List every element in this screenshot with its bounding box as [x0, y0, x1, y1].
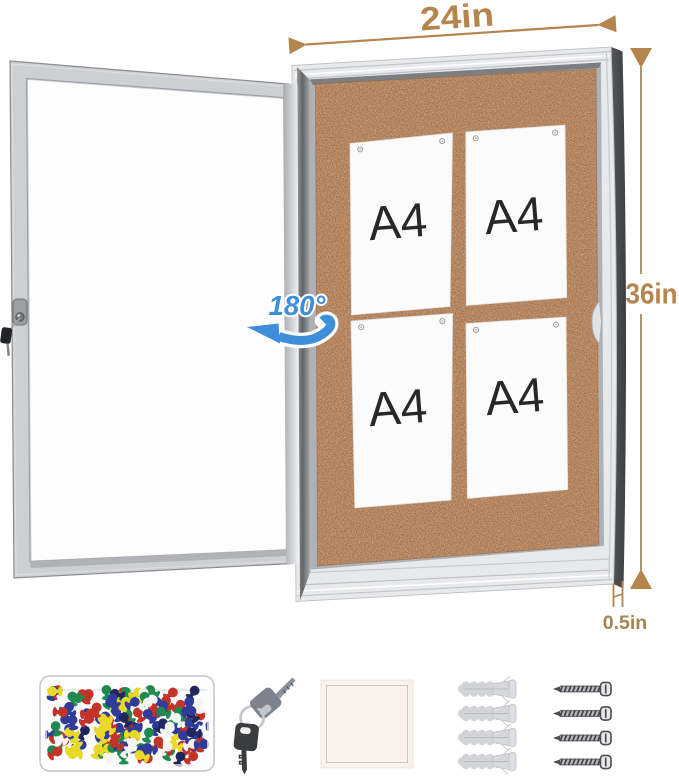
svg-text:A4: A4: [366, 194, 429, 251]
svg-text:A4: A4: [482, 188, 545, 245]
svg-text:0.5in: 0.5in: [603, 612, 647, 634]
svg-text:A4: A4: [483, 369, 546, 426]
svg-text:36in: 36in: [626, 279, 678, 311]
svg-text:A4: A4: [366, 380, 429, 437]
